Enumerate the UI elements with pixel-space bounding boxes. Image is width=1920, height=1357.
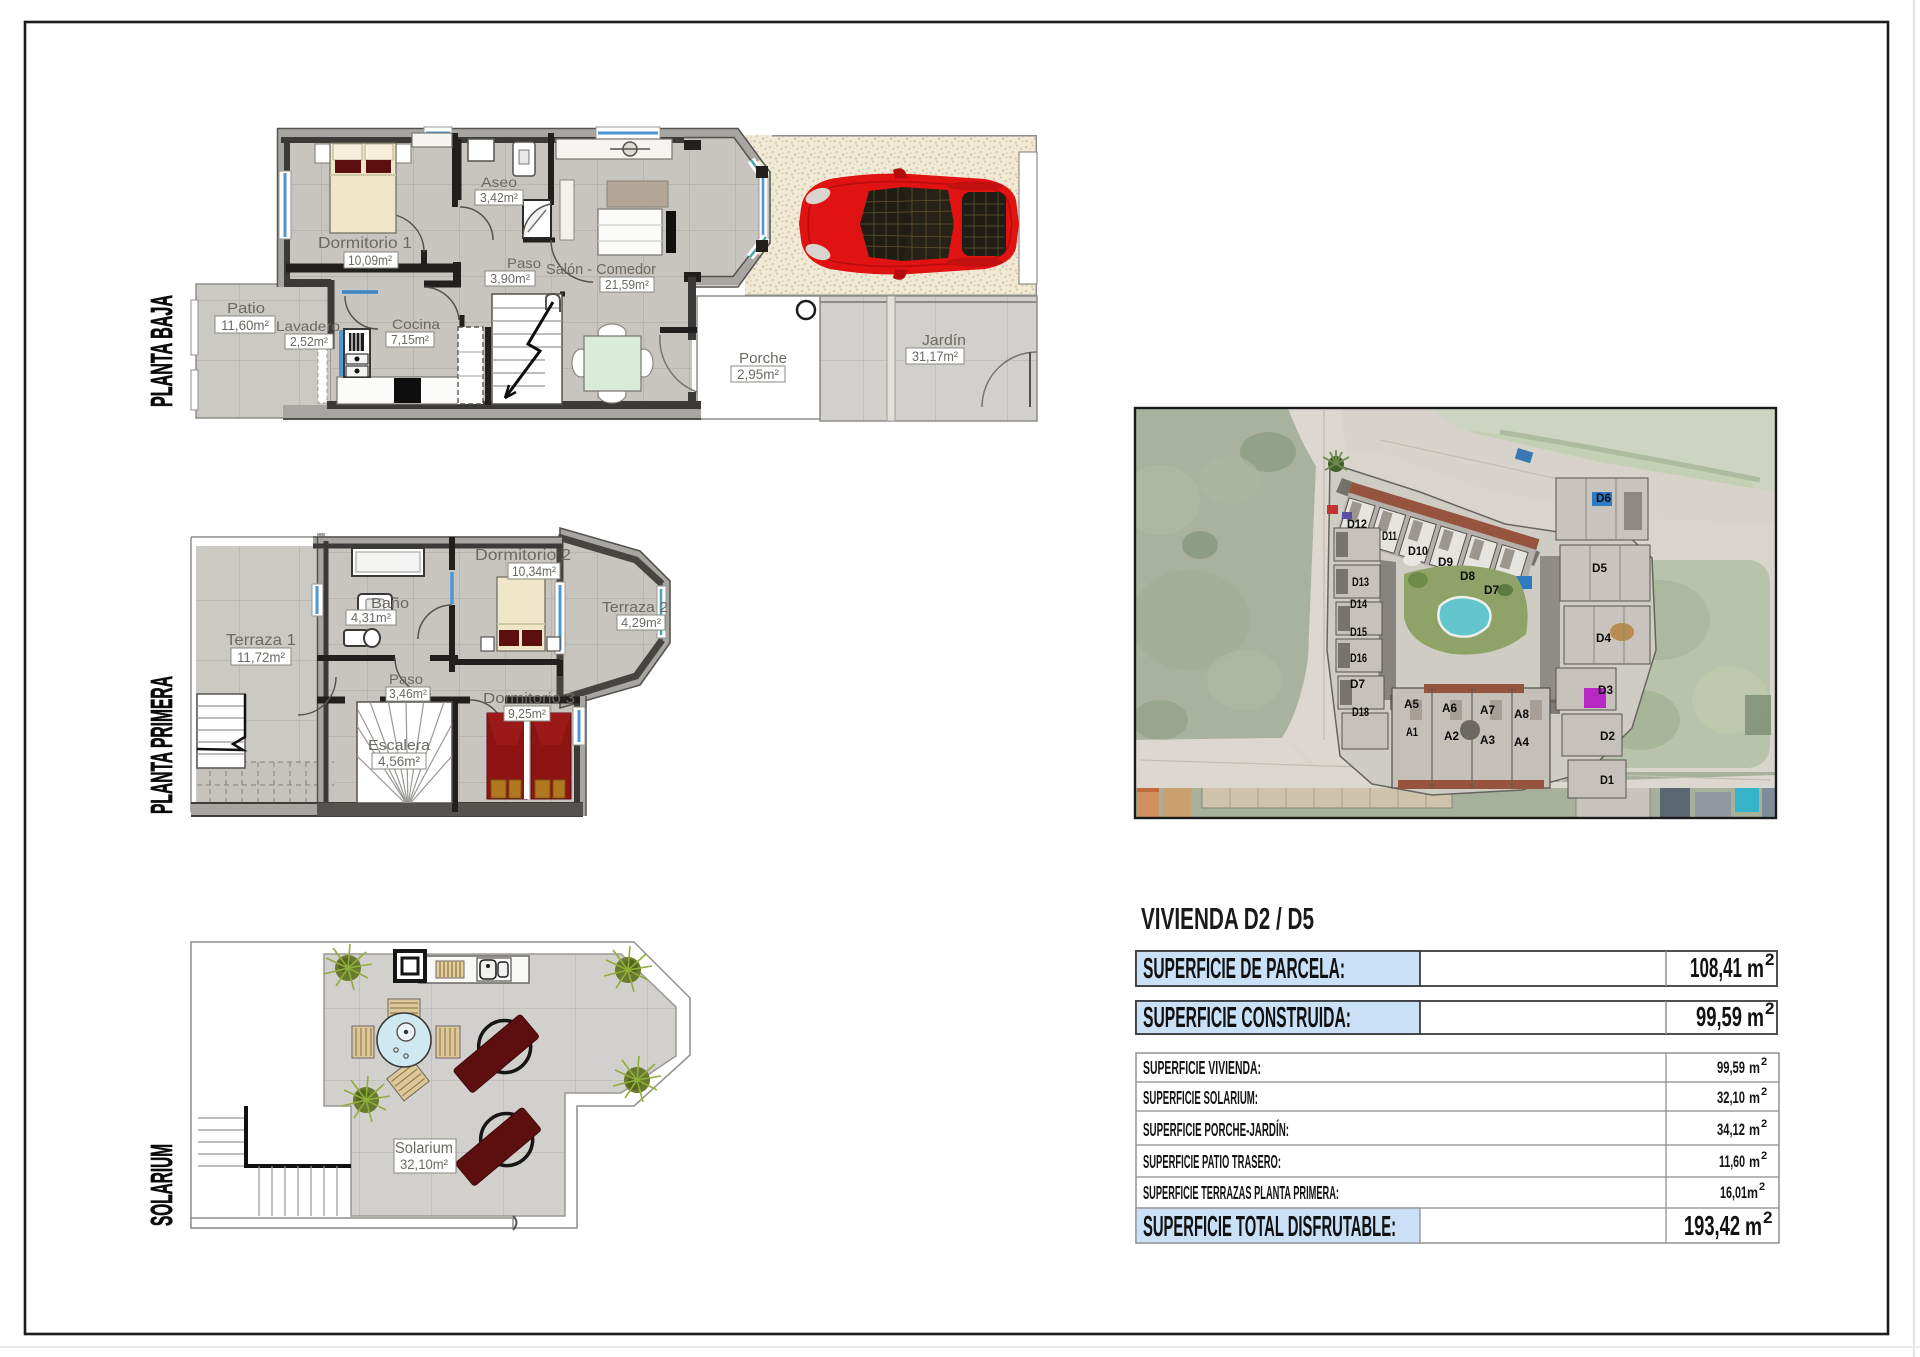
svg-text:SUPERFICIE DE PARCELA:: SUPERFICIE DE PARCELA:: [1143, 953, 1345, 985]
svg-text:A2: A2: [1444, 731, 1459, 743]
svg-text:D13: D13: [1352, 577, 1369, 589]
svg-text:D4: D4: [1596, 633, 1612, 645]
svg-text:D8: D8: [1460, 571, 1476, 583]
svg-text:3,42m²: 3,42m²: [480, 190, 519, 205]
svg-text:2: 2: [1761, 1086, 1767, 1098]
svg-text:193,42: 193,42: [1684, 1210, 1740, 1241]
svg-text:SUPERFICIE SOLARIUM:: SUPERFICIE SOLARIUM:: [1143, 1088, 1258, 1108]
svg-text:2: 2: [1759, 1181, 1765, 1193]
svg-text:Paso: Paso: [389, 671, 423, 687]
svg-text:m: m: [1749, 1154, 1760, 1171]
svg-text:Terraza 2: Terraza 2: [602, 599, 668, 616]
svg-text:10,09m²: 10,09m²: [348, 252, 392, 268]
svg-text:Patio: Patio: [227, 300, 265, 317]
svg-text:2,95m²: 2,95m²: [737, 366, 779, 382]
svg-text:A5: A5: [1404, 699, 1420, 711]
svg-text:108,41: 108,41: [1690, 952, 1742, 983]
svg-text:D12: D12: [1347, 519, 1367, 531]
svg-text:2: 2: [1761, 1118, 1767, 1130]
svg-text:D11: D11: [1382, 531, 1397, 543]
svg-text:A7: A7: [1480, 705, 1495, 717]
svg-text:Salón - Comedor: Salón - Comedor: [546, 261, 656, 278]
svg-text:A6: A6: [1442, 703, 1457, 715]
svg-text:4,31m²: 4,31m²: [351, 610, 392, 625]
svg-text:D6: D6: [1596, 493, 1611, 505]
svg-text:m: m: [1747, 953, 1764, 983]
svg-text:SUPERFICIE PATIO TRASERO:: SUPERFICIE PATIO TRASERO:: [1143, 1152, 1281, 1172]
svg-text:3,46m²: 3,46m²: [389, 686, 428, 701]
svg-text:D18: D18: [1352, 707, 1369, 719]
svg-text:Jardín: Jardín: [922, 332, 966, 349]
svg-text:9,25m²: 9,25m²: [508, 706, 547, 721]
svg-text:m: m: [1749, 1090, 1760, 1107]
svg-text:Porche: Porche: [739, 350, 787, 367]
svg-text:D10: D10: [1408, 546, 1428, 558]
svg-text:D3: D3: [1598, 685, 1613, 697]
svg-text:m: m: [1749, 1122, 1760, 1139]
svg-text:2,52m²: 2,52m²: [290, 334, 329, 349]
svg-text:32,10m²: 32,10m²: [400, 1156, 448, 1172]
svg-text:m: m: [1747, 1002, 1764, 1032]
svg-text:SOLARIUM: SOLARIUM: [144, 1144, 179, 1226]
svg-text:11,60m²: 11,60m²: [221, 317, 269, 333]
svg-text:16,01: 16,01: [1720, 1183, 1747, 1202]
svg-text:A4: A4: [1514, 737, 1530, 749]
svg-text:Cocina: Cocina: [392, 316, 440, 332]
svg-text:99,59: 99,59: [1717, 1058, 1745, 1077]
svg-text:7,15m²: 7,15m²: [391, 332, 430, 347]
svg-text:99,59: 99,59: [1696, 1001, 1742, 1032]
svg-text:D14: D14: [1350, 599, 1367, 611]
svg-text:D15: D15: [1350, 627, 1367, 639]
svg-text:2: 2: [1761, 1150, 1767, 1162]
svg-text:D7: D7: [1484, 585, 1499, 597]
svg-text:D1: D1: [1600, 775, 1615, 787]
svg-text:A1: A1: [1406, 727, 1418, 739]
svg-text:D2: D2: [1600, 731, 1615, 743]
svg-text:D5: D5: [1592, 563, 1608, 575]
svg-text:Dormitorio 3: Dormitorio 3: [483, 690, 575, 707]
svg-text:Dormitorio 2: Dormitorio 2: [475, 547, 571, 564]
svg-text:Paso: Paso: [507, 255, 541, 271]
svg-text:SUPERFICIE TERRAZAS PLANTA PRI: SUPERFICIE TERRAZAS PLANTA PRIMERA:: [1143, 1183, 1339, 1203]
svg-text:D16: D16: [1350, 653, 1367, 665]
svg-text:m: m: [1747, 1185, 1758, 1202]
svg-text:Escalera: Escalera: [368, 737, 431, 754]
svg-text:3,90m²: 3,90m²: [490, 271, 531, 286]
svg-text:2: 2: [1765, 999, 1774, 1018]
svg-text:21,59m²: 21,59m²: [605, 277, 650, 292]
svg-text:2: 2: [1763, 1208, 1772, 1227]
svg-text:A3: A3: [1480, 735, 1495, 747]
svg-text:SUPERFICIE TOTAL DISFRUTABLE:: SUPERFICIE TOTAL DISFRUTABLE:: [1143, 1211, 1396, 1243]
svg-text:31,17m²: 31,17m²: [912, 348, 958, 364]
svg-text:11,72m²: 11,72m²: [237, 649, 285, 665]
svg-text:SUPERFICIE CONSTRUIDA:: SUPERFICIE CONSTRUIDA:: [1143, 1002, 1351, 1034]
svg-text:34,12: 34,12: [1717, 1120, 1745, 1139]
svg-text:PLANTA BAJA: PLANTA BAJA: [144, 295, 179, 407]
svg-text:A8: A8: [1514, 709, 1530, 721]
svg-text:2: 2: [1765, 950, 1774, 969]
svg-text:m: m: [1745, 1211, 1762, 1241]
svg-text:VIVIENDA D2 / D5: VIVIENDA D2 / D5: [1141, 901, 1314, 936]
svg-text:m: m: [1749, 1060, 1760, 1077]
svg-text:Dormitorio 1: Dormitorio 1: [318, 235, 412, 252]
svg-text:32,10: 32,10: [1717, 1088, 1745, 1107]
svg-text:Terraza 1: Terraza 1: [226, 632, 296, 649]
svg-text:D7: D7: [1350, 679, 1365, 691]
svg-text:11,60: 11,60: [1719, 1152, 1745, 1171]
svg-text:D9: D9: [1438, 557, 1453, 569]
svg-text:10,34m²: 10,34m²: [512, 563, 556, 579]
svg-text:Aseo: Aseo: [481, 174, 517, 190]
svg-text:SUPERFICIE PORCHE-JARDÍN:: SUPERFICIE PORCHE-JARDÍN:: [1143, 1119, 1289, 1140]
svg-text:Solarium: Solarium: [395, 1140, 453, 1157]
svg-text:PLANTA PRIMERA: PLANTA PRIMERA: [144, 676, 179, 814]
svg-text:2: 2: [1761, 1056, 1767, 1068]
svg-text:SUPERFICIE VIVIENDA:: SUPERFICIE VIVIENDA:: [1143, 1058, 1261, 1078]
svg-text:Lavadero: Lavadero: [276, 318, 340, 334]
svg-text:4,56m²: 4,56m²: [378, 753, 420, 769]
svg-text:4,29m²: 4,29m²: [621, 615, 662, 630]
